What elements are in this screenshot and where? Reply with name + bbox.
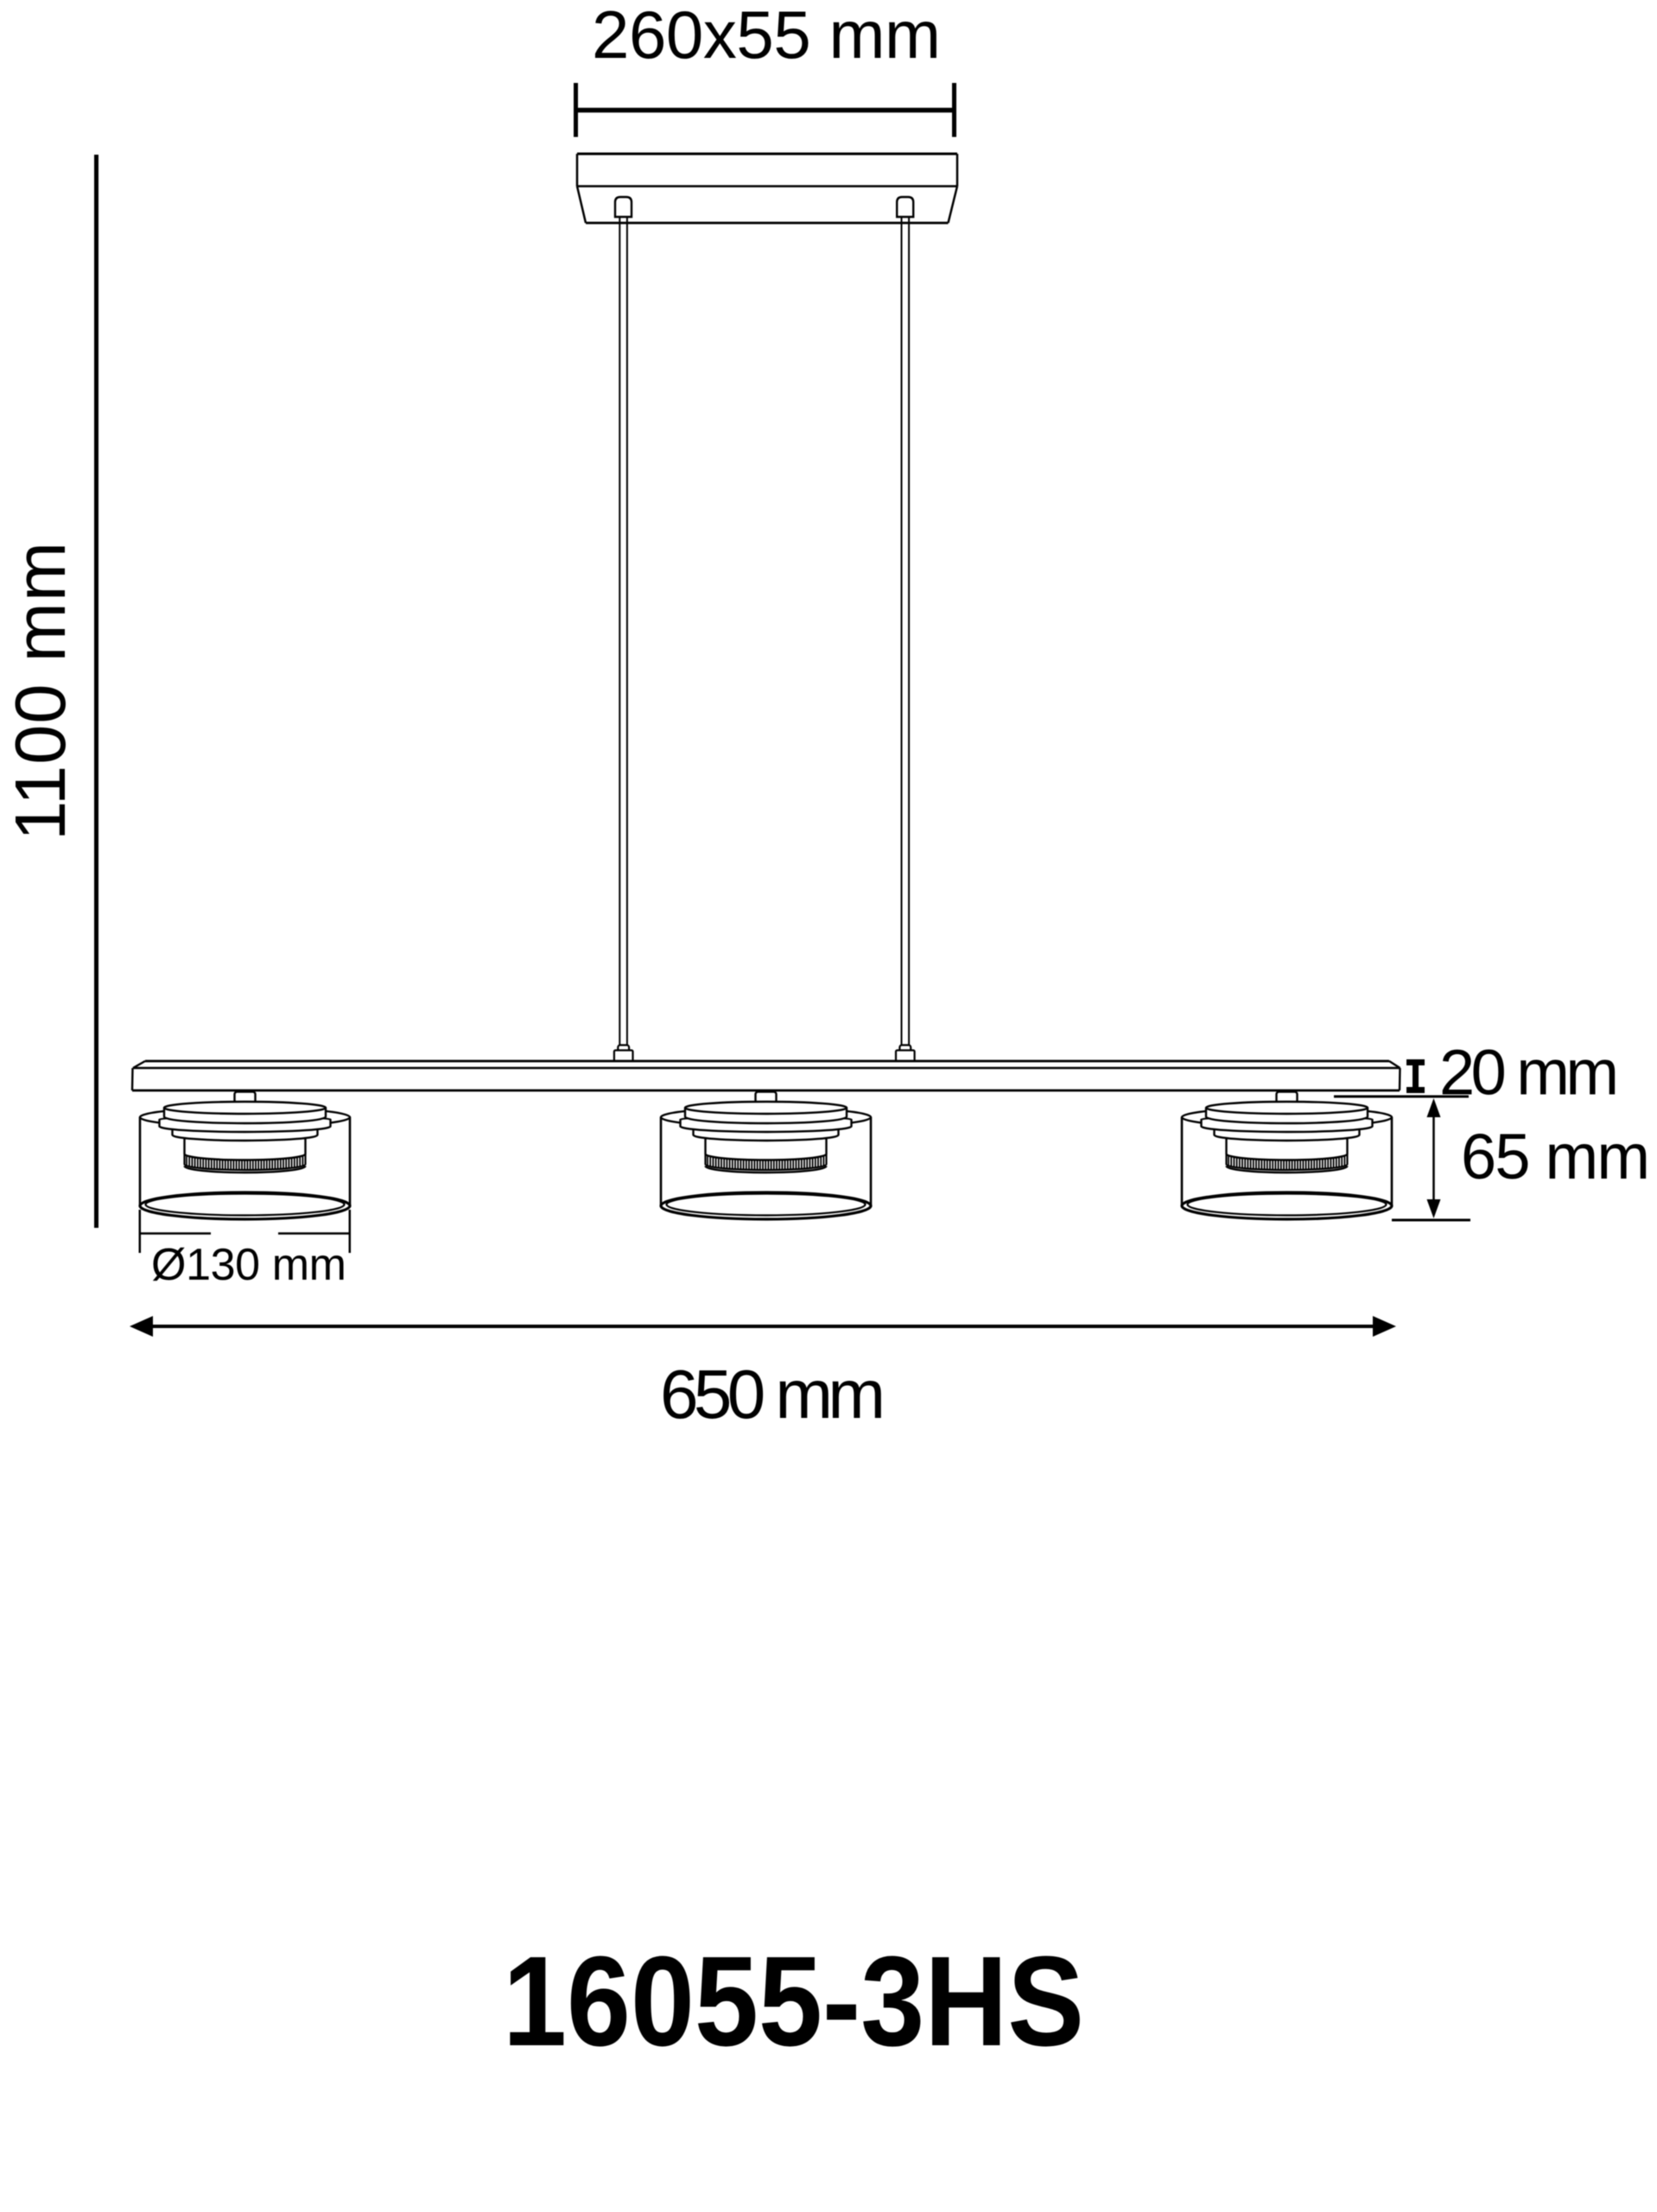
svg-text:650 mm: 650 mm: [660, 1356, 886, 1433]
svg-text:260x55 mm: 260x55 mm: [592, 0, 941, 73]
svg-text:16055-3HS: 16055-3HS: [503, 1930, 1084, 2073]
svg-text:1100 mm: 1100 mm: [0, 542, 80, 841]
svg-text:65 mm: 65 mm: [1461, 1121, 1650, 1192]
svg-text:Ø130 mm: Ø130 mm: [151, 1240, 346, 1290]
